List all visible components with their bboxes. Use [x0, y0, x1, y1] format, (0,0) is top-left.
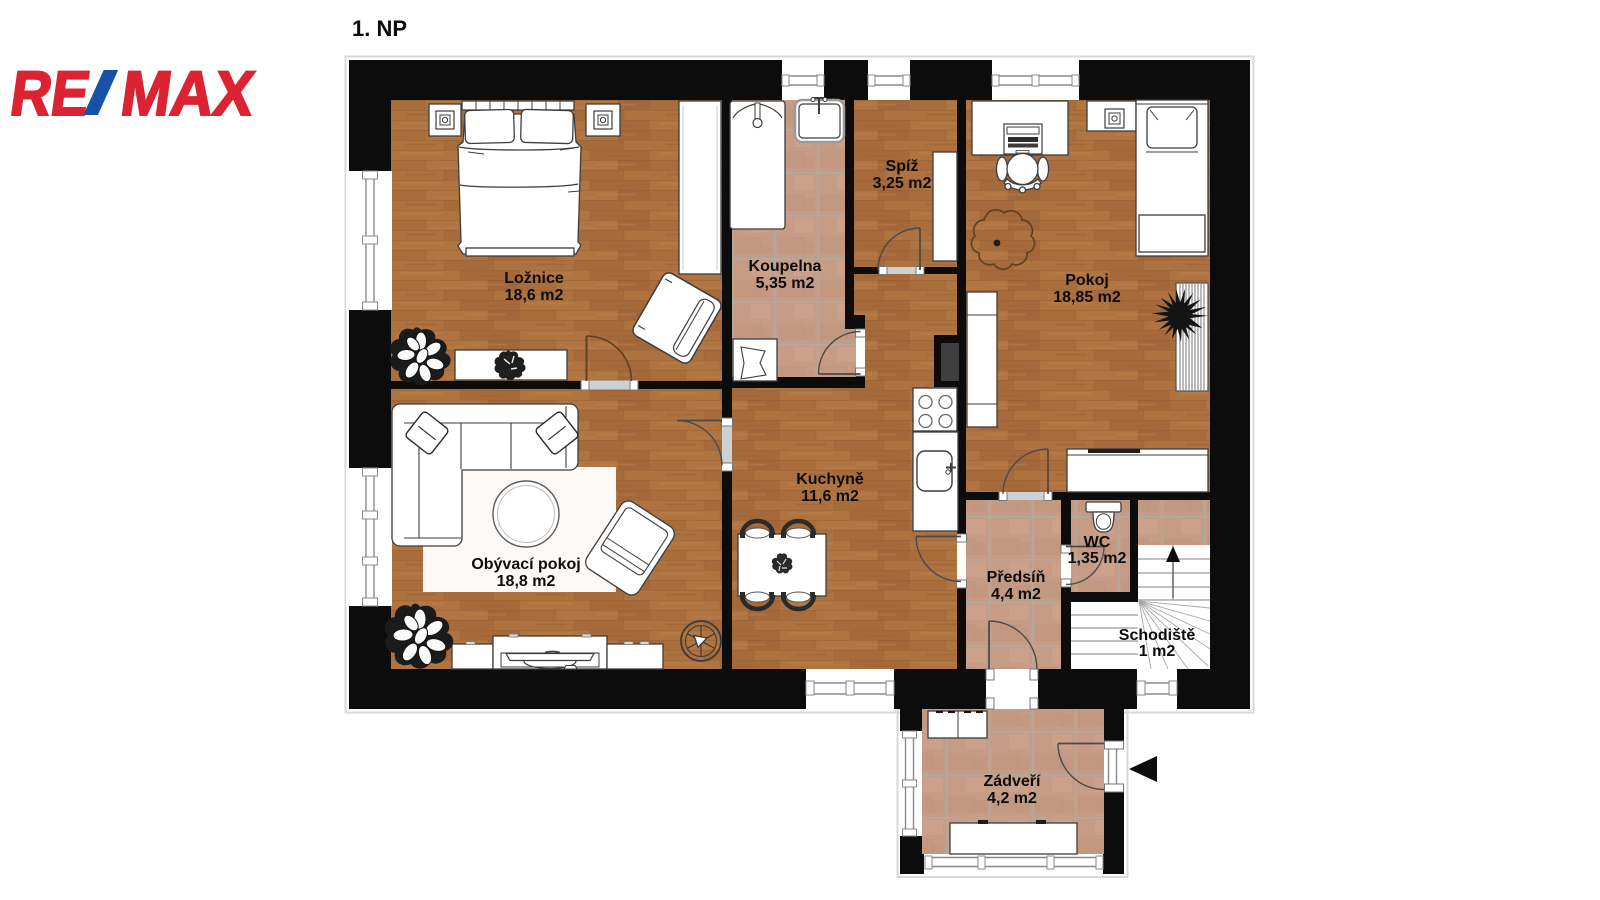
svg-text:Pokoj: Pokoj: [1065, 272, 1109, 289]
svg-text:4,2 m2: 4,2 m2: [987, 790, 1037, 807]
svg-text:Koupelna: Koupelna: [749, 258, 822, 275]
svg-text:18,6 m2: 18,6 m2: [505, 287, 564, 304]
svg-text:Kuchyně: Kuchyně: [796, 471, 864, 488]
svg-text:Ložnice: Ložnice: [504, 270, 564, 287]
svg-text:MAX: MAX: [117, 59, 259, 129]
svg-text:Schodiště: Schodiště: [1119, 627, 1196, 644]
svg-text:1 m2: 1 m2: [1139, 643, 1176, 660]
svg-text:1,35 m2: 1,35 m2: [1068, 550, 1127, 567]
svg-text:11,6 m2: 11,6 m2: [801, 488, 859, 505]
svg-text:Obývací pokoj: Obývací pokoj: [471, 556, 580, 573]
svg-text:4,4 m2: 4,4 m2: [991, 586, 1041, 603]
svg-text:18,85 m2: 18,85 m2: [1053, 289, 1121, 306]
svg-text:3,25 m2: 3,25 m2: [873, 175, 932, 192]
svg-text:5,35 m2: 5,35 m2: [756, 275, 815, 292]
svg-text:18,8 m2: 18,8 m2: [497, 573, 556, 590]
svg-text:Zádveří: Zádveří: [984, 773, 1041, 790]
svg-text:1. NP: 1. NP: [352, 16, 407, 41]
svg-text:WC: WC: [1084, 534, 1111, 551]
svg-text:RE: RE: [6, 59, 94, 129]
svg-text:Spíž: Spíž: [886, 158, 919, 175]
svg-text:Předsíň: Předsíň: [987, 569, 1046, 586]
